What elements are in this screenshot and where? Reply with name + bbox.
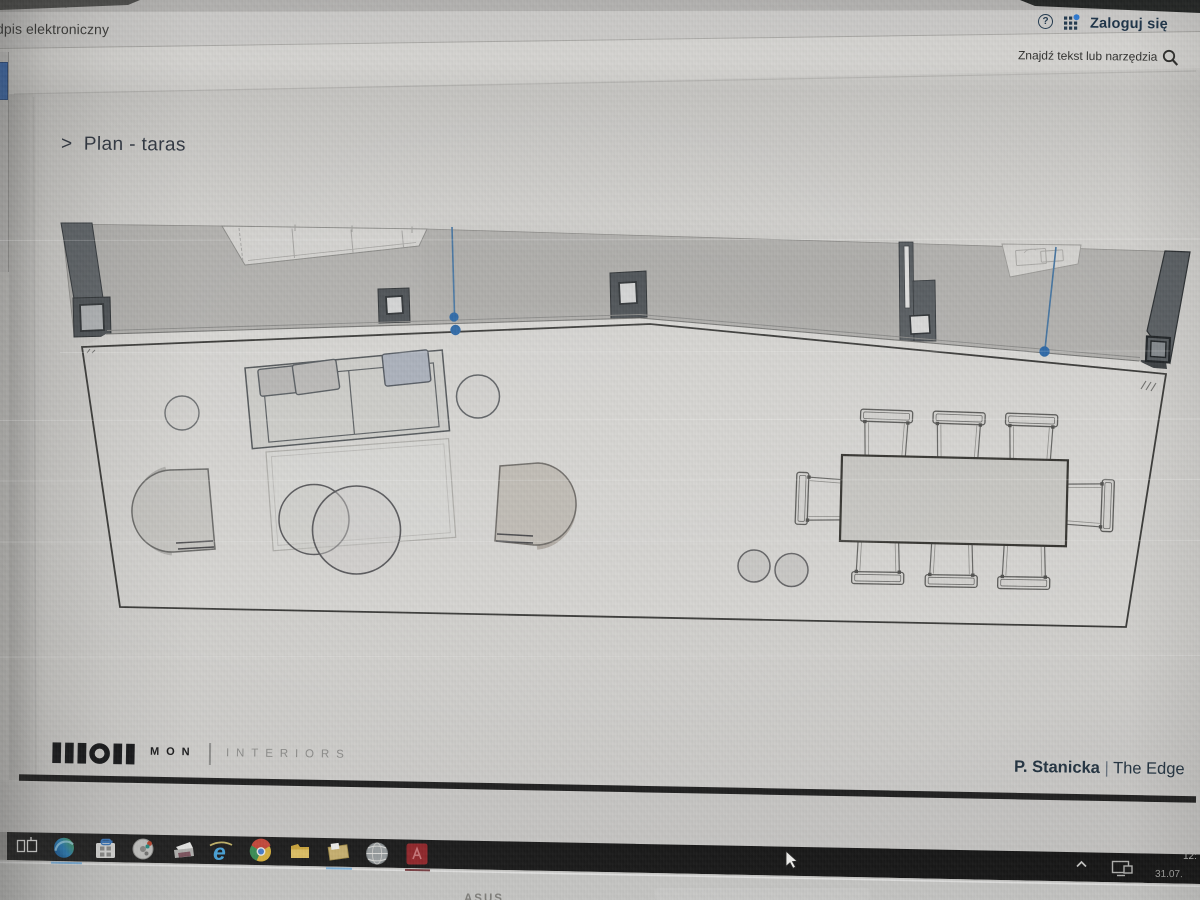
svg-text:ASUS: ASUS — [464, 893, 504, 900]
